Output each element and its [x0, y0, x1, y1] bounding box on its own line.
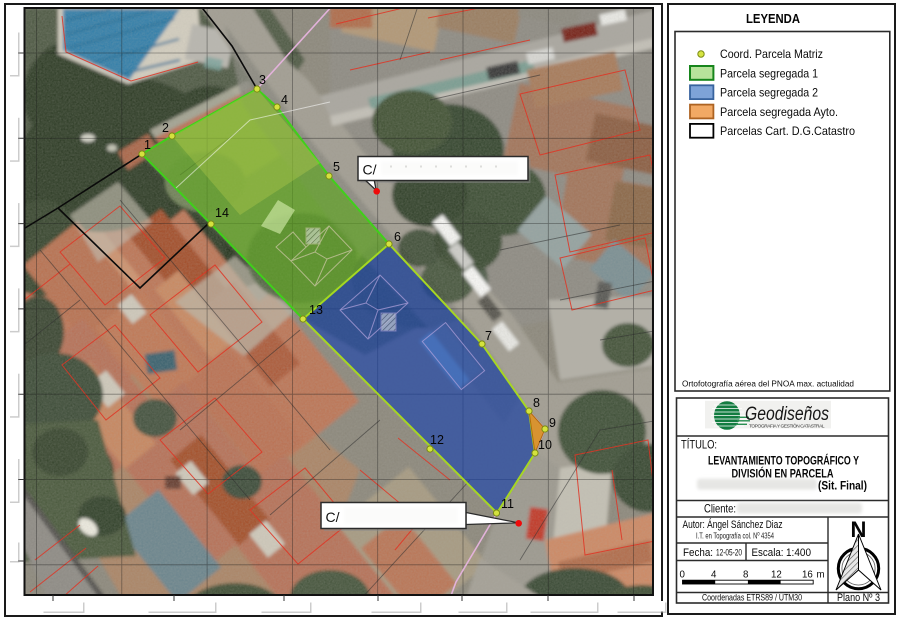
- svg-text:14: 14: [215, 206, 229, 220]
- svg-text:Fecha:: Fecha:: [683, 547, 713, 559]
- svg-text:Geodiseños: Geodiseños: [745, 403, 829, 425]
- svg-text:Parcela segregada 2: Parcela segregada 2: [720, 87, 818, 100]
- svg-text:0: 0: [680, 570, 686, 581]
- svg-text:C/: C/: [326, 509, 340, 525]
- svg-text:Coord. Parcela Matriz: Coord. Parcela Matriz: [720, 48, 823, 61]
- svg-text:11: 11: [501, 497, 514, 511]
- svg-text:Autor: Ángel Sánchez Diaz: Autor: Ángel Sánchez Diaz: [683, 518, 783, 531]
- svg-text:9: 9: [549, 416, 556, 430]
- svg-text:8: 8: [743, 570, 748, 581]
- svg-text:7: 7: [485, 329, 492, 343]
- svg-text:6: 6: [394, 230, 401, 244]
- svg-text:12: 12: [771, 570, 782, 581]
- svg-text:1: 1: [144, 138, 151, 152]
- svg-text:2: 2: [162, 121, 169, 135]
- svg-text:4: 4: [711, 570, 717, 581]
- svg-text:Ortofotografía aérea del PNOA: Ortofotografía aérea del PNOA max. actua…: [682, 379, 854, 389]
- svg-text:13: 13: [309, 303, 323, 317]
- svg-text:12: 12: [430, 433, 444, 447]
- svg-text:Parcela segregada Ayto.: Parcela segregada Ayto.: [720, 106, 838, 119]
- svg-text:Parcela segregada 1: Parcela segregada 1: [720, 67, 818, 80]
- svg-text:Escala:: Escala:: [752, 547, 784, 559]
- svg-text:C/: C/: [363, 162, 377, 178]
- svg-text:8: 8: [533, 396, 540, 410]
- svg-text:5: 5: [333, 160, 340, 174]
- svg-text:(Sit. Final): (Sit. Final): [818, 479, 867, 493]
- svg-text:LEVANTAMIENTO TOPOGRÁFICO Y: LEVANTAMIENTO TOPOGRÁFICO Y: [708, 453, 859, 468]
- svg-text:Cliente:: Cliente:: [704, 502, 736, 516]
- svg-text:16: 16: [802, 570, 813, 581]
- svg-text:Parcelas Cart. D.G.Catastro: Parcelas Cart. D.G.Catastro: [720, 125, 855, 138]
- svg-text:10: 10: [538, 438, 552, 452]
- svg-text:Plano Nº 3: Plano Nº 3: [837, 592, 880, 604]
- svg-text:3: 3: [259, 73, 266, 87]
- svg-text:12-05-20: 12-05-20: [716, 548, 742, 558]
- svg-text:I.T. en Topografía col. Nº 435: I.T. en Topografía col. Nº 4354: [696, 531, 774, 541]
- svg-text:LEYENDA: LEYENDA: [746, 11, 800, 26]
- svg-text:Coordenadas ETRS89 / UTM30: Coordenadas ETRS89 / UTM30: [702, 592, 802, 603]
- svg-text:TÍTULO:: TÍTULO:: [681, 439, 717, 452]
- svg-text:m: m: [817, 570, 825, 581]
- svg-text:TOPOGRAFIA Y GESTIÓN CATASTRAL: TOPOGRAFIA Y GESTIÓN CATASTRAL: [749, 423, 825, 430]
- svg-text:4: 4: [281, 93, 288, 107]
- svg-text:1:400: 1:400: [786, 547, 811, 559]
